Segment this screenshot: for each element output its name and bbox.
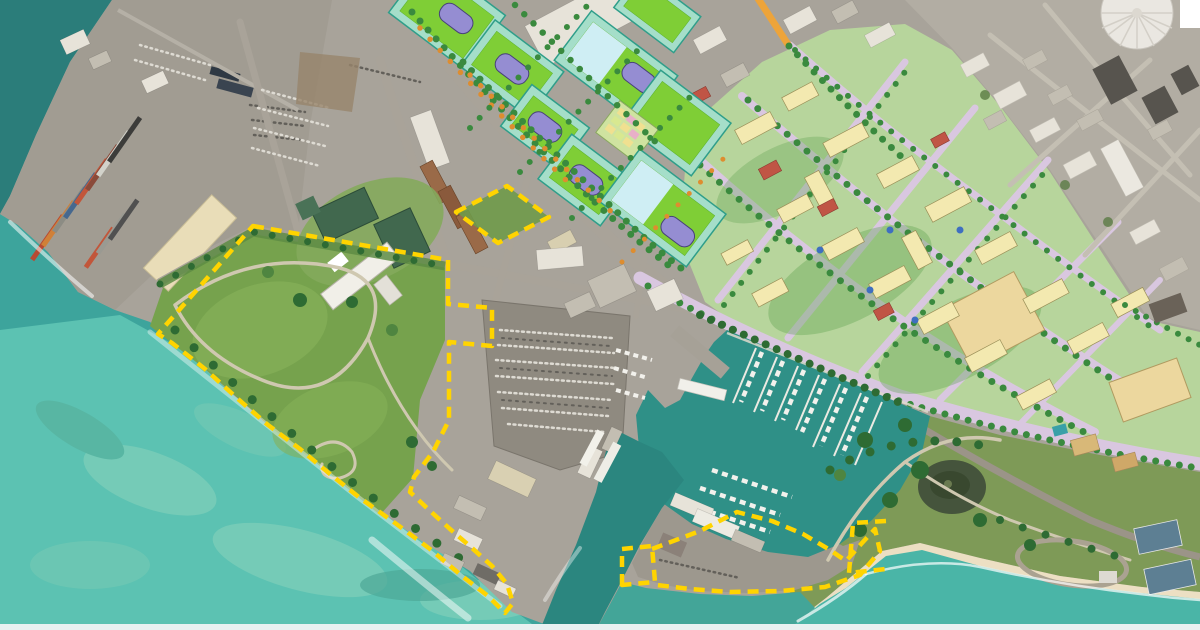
tree <box>1024 539 1036 551</box>
dome-cap <box>1132 8 1142 18</box>
tree <box>911 461 929 479</box>
tree <box>857 432 873 448</box>
tree <box>834 469 846 481</box>
pool <box>817 247 824 254</box>
pool <box>887 227 894 234</box>
tree <box>346 296 358 308</box>
aerial-master-plan-map <box>0 0 1200 630</box>
tree <box>427 461 437 471</box>
pool <box>957 227 964 234</box>
tree <box>882 492 898 508</box>
city-tree <box>1103 217 1113 227</box>
tree <box>898 418 912 432</box>
reef-patch <box>30 541 150 589</box>
tree <box>293 293 307 307</box>
map-canvas <box>0 0 1200 630</box>
city-tree <box>1060 180 1070 190</box>
pool <box>867 287 874 294</box>
tree <box>853 523 867 537</box>
building <box>1099 571 1117 583</box>
tree <box>262 266 274 278</box>
building <box>536 246 584 270</box>
tree <box>406 436 418 448</box>
tree <box>973 513 987 527</box>
image-cut-corner <box>1180 0 1200 28</box>
city-tree <box>980 90 990 100</box>
dirt-lot <box>296 52 360 112</box>
bottom-edge-strip <box>0 624 1200 630</box>
tree <box>386 324 398 336</box>
pool <box>912 317 919 324</box>
